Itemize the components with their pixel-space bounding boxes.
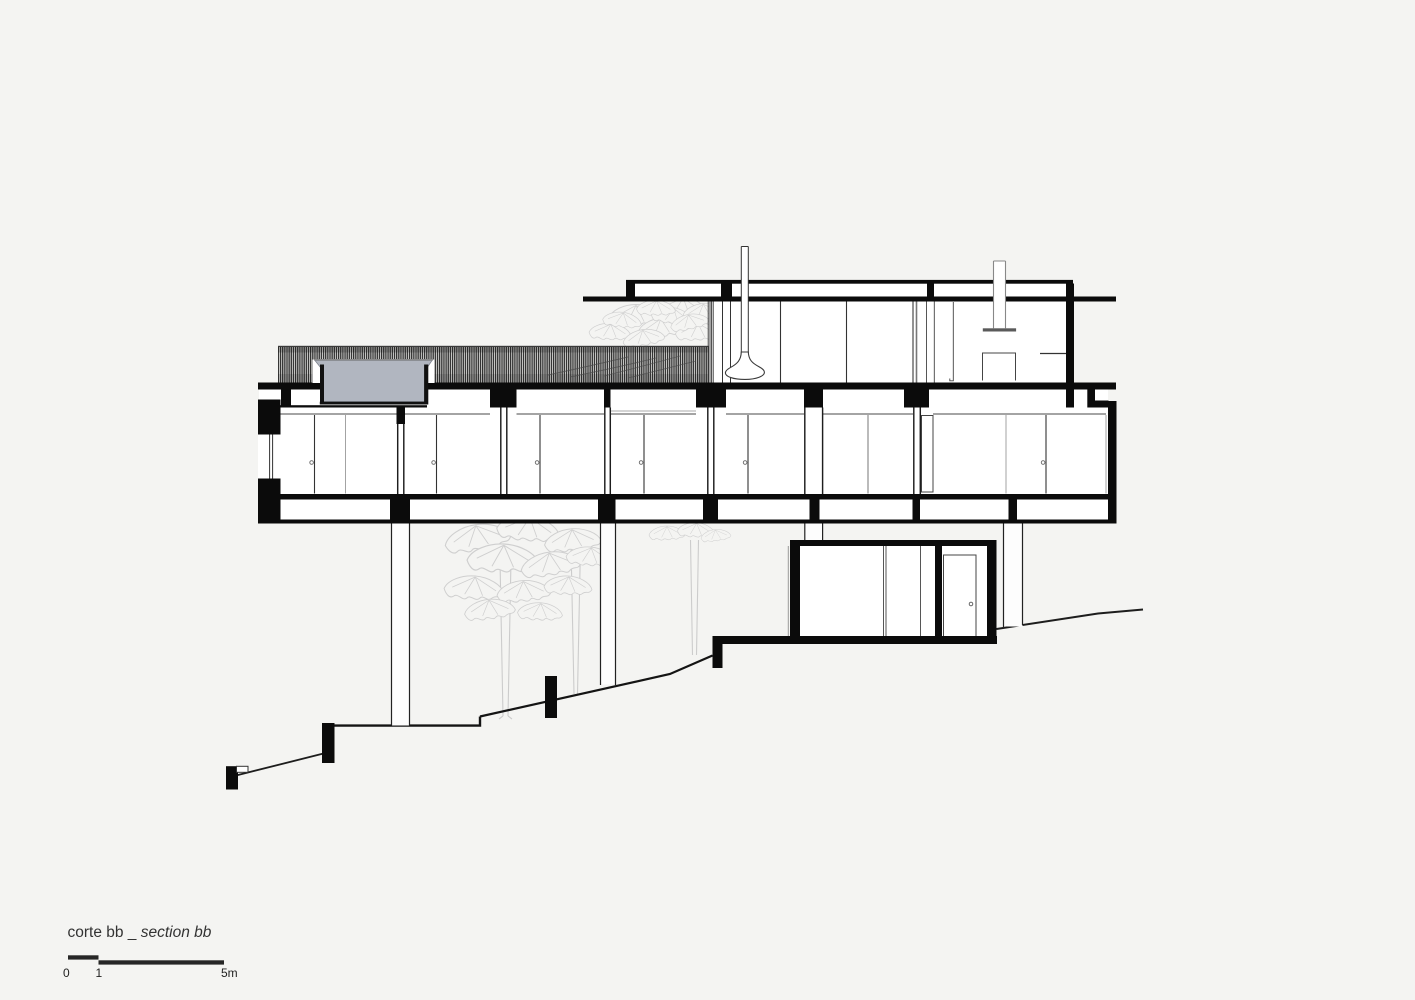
svg-text:0: 0 — [63, 966, 70, 980]
svg-text:1: 1 — [96, 966, 103, 980]
svg-text:5m: 5m — [221, 966, 238, 980]
svg-text:corte bb _ section bb: corte bb _ section bb — [68, 924, 212, 941]
